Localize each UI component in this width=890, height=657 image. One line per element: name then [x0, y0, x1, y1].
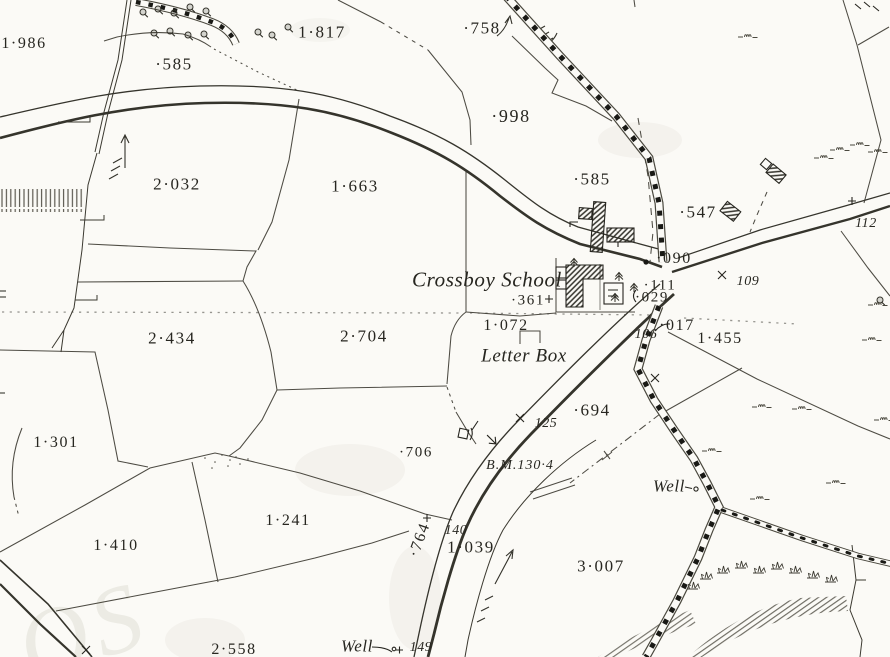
- gate-149: 149: [410, 641, 433, 655]
- point-symbols: [0, 2, 879, 654]
- parcel-585-nw: ·585: [155, 56, 193, 73]
- place-letter-box: Letter Box: [481, 347, 567, 366]
- parcel-2434: 2·434: [148, 330, 196, 347]
- parcel-2558: 2·558: [211, 642, 256, 657]
- parcel-585-ne: ·585: [573, 171, 611, 188]
- parcel-1817: 1·817: [298, 24, 346, 41]
- deciduous-trees: [140, 4, 885, 305]
- parcel-1039: 1·039: [447, 539, 495, 556]
- gate-112: 112: [855, 217, 877, 231]
- boundary-post-icon: [718, 271, 726, 279]
- parcel-2032: 2·032: [153, 176, 201, 193]
- parcel-694: ·694: [573, 402, 611, 419]
- os-map-sheet: OS 1·986 ·585 1·817 ·758 ·998 ·585 ·547 …: [0, 0, 890, 657]
- parcel-1410: 1·410: [93, 538, 138, 554]
- parcel-1072: 1·072: [483, 318, 528, 334]
- spot-017: ·017: [659, 318, 695, 334]
- parcel-547: ·547: [679, 204, 717, 221]
- spot-029: ·029: [635, 291, 669, 306]
- place-well-south: Well: [341, 638, 373, 655]
- well-icon: [694, 487, 698, 491]
- parcel-706: ·706: [399, 446, 433, 461]
- bench-mark-icon: [396, 647, 403, 654]
- gate-106: 106: [635, 328, 658, 342]
- letter-box-mark: [458, 428, 469, 439]
- map-linework: [0, 0, 890, 657]
- spot-758: ·758: [463, 20, 501, 37]
- boundary-post-icon: [651, 374, 659, 382]
- parcel-3007: 3·007: [577, 558, 625, 575]
- parcel-1663: 1·663: [331, 178, 379, 195]
- gate-125: 125: [535, 417, 558, 431]
- rough-grass-tufts: [702, 35, 890, 500]
- roads: [0, 86, 890, 657]
- bench-mark-130-4: B.M.130·4: [486, 459, 554, 473]
- parcel-1455: 1·455: [697, 331, 742, 347]
- parcel-1986: 1·986: [1, 36, 46, 52]
- place-crossboy-school: Crossboy School: [412, 270, 562, 291]
- speckle-dots: [204, 454, 249, 469]
- parcel-1301: 1·301: [33, 435, 78, 451]
- well-icon: [392, 647, 396, 651]
- parcel-1241: 1·241: [265, 513, 310, 529]
- parcel-998: ·998: [491, 107, 530, 125]
- parcel-2704: 2·704: [340, 328, 388, 345]
- scrub-symbols: [687, 561, 838, 589]
- bench-mark-icon: [545, 295, 553, 303]
- spot-090: ·090: [656, 251, 692, 267]
- boundary-post-icon: [516, 414, 524, 422]
- place-well-east: Well: [653, 478, 685, 495]
- gate-109: 109: [737, 275, 760, 289]
- bench-mark-icon: [848, 197, 856, 205]
- outbuildings-northeast: [720, 158, 786, 221]
- gate-140: 140: [445, 524, 468, 538]
- spot-361: ·361: [511, 294, 545, 309]
